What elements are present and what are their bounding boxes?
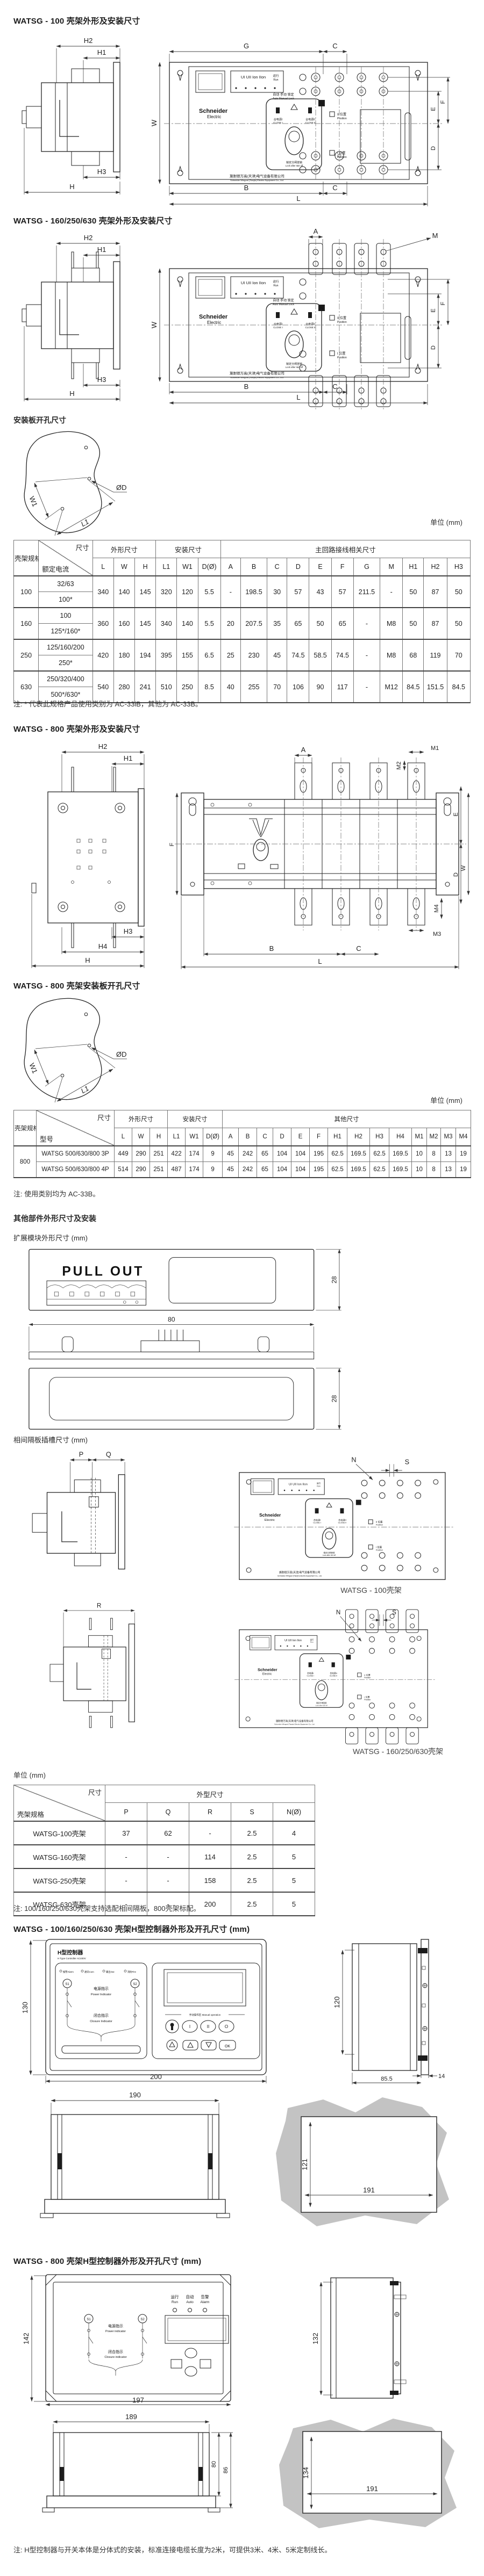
- table-cell: M12: [380, 671, 403, 703]
- led-label: 报警Alarm: [63, 1970, 74, 1974]
- table-cell: 487: [168, 1162, 186, 1178]
- s1-label: S1: [87, 2318, 91, 2321]
- table-cell: 194: [135, 639, 156, 671]
- table-cell: 155: [177, 639, 198, 671]
- table-cell: 117: [331, 671, 353, 703]
- company-name-en: Schneider Wingoal (Tianjin) Electric Equ…: [230, 179, 284, 182]
- dim-label: W1: [28, 1062, 39, 1074]
- front-view: UI UII Ion IIon 运行 Run Schneider Electri…: [234, 1456, 454, 1579]
- table-cell: 25: [220, 639, 240, 671]
- col-header: M1: [412, 1128, 427, 1146]
- unit-label: 单位 (mm): [8, 517, 462, 527]
- table-cell: -: [105, 1868, 147, 1892]
- brand-logo-2: Electric: [207, 114, 221, 119]
- terminal-screws: [361, 1480, 421, 1571]
- section-title-watsg160: WATSG - 160/250/630 壳架外形及安装尺寸: [13, 215, 173, 226]
- table-cell: 125*/160*: [39, 624, 92, 640]
- table-cell: 62.5: [328, 1146, 347, 1162]
- mode-label-cn: 自动 手动 锁定: [273, 92, 294, 97]
- dim-label: 191: [363, 2186, 375, 2194]
- table-cell: 420: [92, 639, 113, 671]
- table-cell: 50: [447, 608, 470, 639]
- table-cell: -: [220, 576, 240, 608]
- dimension-table-100-630: 壳架规格 尺寸 额定电流 外形尺寸 安装尺寸 主回路接线相关尺寸 L W H L…: [13, 540, 471, 703]
- dim-label: S: [392, 1609, 396, 1616]
- dim-label: W: [150, 119, 158, 126]
- col-header: E: [309, 558, 331, 576]
- bottom-lugs: [309, 376, 390, 407]
- table-cell: 84.5: [447, 671, 470, 703]
- table-cell: 30: [267, 576, 287, 608]
- dim-label: H: [85, 956, 90, 964]
- table-cell: 57: [287, 576, 309, 608]
- table-cell: WATSG 500/630/800 3P: [37, 1146, 115, 1162]
- dim-label: 121: [301, 2159, 309, 2170]
- table-cell: 6.5: [198, 639, 220, 671]
- table-cell: 50: [403, 576, 424, 608]
- table-cell: 250/320/400: [39, 671, 92, 687]
- col-header: Q: [147, 1803, 189, 1821]
- col-header: H2: [347, 1128, 370, 1146]
- table-cell: 8: [427, 1162, 441, 1178]
- table-cell: 195: [310, 1146, 328, 1162]
- dim-label: F: [440, 100, 446, 104]
- dim-label: L: [296, 194, 300, 203]
- bottom-lugs: [345, 1728, 418, 1744]
- corner-top-label: 尺寸: [97, 1112, 111, 1122]
- led-label: 消防Fire: [127, 1970, 137, 1974]
- caption-frame160: WATSG - 160/250/630壳架: [285, 1746, 484, 1757]
- table-cell: 65: [287, 608, 309, 639]
- pos2-en: Position: [337, 117, 347, 120]
- left-button: [171, 2359, 182, 2368]
- table-cell: 10: [412, 1162, 427, 1178]
- n-terminal-label: N: [357, 1502, 360, 1505]
- table-cell: 45: [223, 1162, 239, 1178]
- table-cell: 255: [240, 671, 267, 703]
- section-title-watsg800-mount: WATSG - 800 壳架安装板开孔尺寸: [13, 980, 140, 991]
- col-header: H3: [447, 558, 470, 576]
- dim-label: 130: [21, 2002, 29, 2014]
- close2-en: CLOSE II: [338, 1522, 347, 1524]
- dim-label: 80: [168, 1316, 175, 1323]
- down-button: [185, 2366, 197, 2376]
- table-cell: WATSG-160壳架: [14, 1845, 105, 1868]
- col-header: W1: [177, 558, 198, 576]
- table-cell: 514: [115, 1162, 132, 1178]
- col-header: L1: [168, 1128, 186, 1146]
- company-name-en: Schneider Wingoal (Tianjin) Electric Equ…: [274, 1723, 315, 1725]
- table-cell: 340: [92, 576, 113, 608]
- h-controller-small-drawing: 130 H型控制器 H Type Controller AC400V 报警Ala…: [8, 1934, 471, 2084]
- indicator-diagram: S1 S2 电源指示 Power indicator 闭合指示 Closure …: [84, 2314, 147, 2376]
- table-cell: 119: [424, 639, 447, 671]
- col-header: M2: [427, 1128, 441, 1146]
- table-cell: 70: [267, 671, 287, 703]
- col-header-frame: 壳架规格: [14, 540, 39, 576]
- pos2-cn: II 位置: [337, 112, 346, 117]
- pos2-en: Position: [337, 321, 347, 324]
- col-header: M: [380, 558, 403, 576]
- controller-title-en: H Type Controller AC400V: [58, 1957, 86, 1960]
- pos1-en: Position: [337, 356, 347, 359]
- table-cell: M8: [380, 608, 403, 639]
- h-controller-800-top-and-cutout: 189 80 86 134 191: [8, 2413, 471, 2532]
- closure-indicator-en: Closure Indicator: [90, 2020, 112, 2023]
- close2-en: CLOSE II: [305, 326, 315, 329]
- top-lugs: [345, 1610, 418, 1633]
- company-name-en: Schneider Wingoal (Tianjin) Electric Equ…: [277, 1575, 322, 1577]
- col-header: S: [231, 1803, 273, 1821]
- col-header: L: [92, 558, 113, 576]
- col-header: H1: [328, 1128, 347, 1146]
- expansion-module-drawing: PULL OUT 28 80 2: [13, 1244, 401, 1432]
- table-cell: 45: [267, 639, 287, 671]
- lock-cn: 锁定分闸挂锁: [316, 1701, 327, 1704]
- table-cell: 5.5: [198, 576, 220, 608]
- table-cell: 70: [447, 639, 470, 671]
- power-indicator-en: Power Indicator: [91, 1993, 111, 1996]
- right-button: [200, 2359, 211, 2368]
- closure-indicator-cn: 闭合指示: [108, 2349, 123, 2354]
- table-cell: 45: [223, 1146, 239, 1162]
- col-header: H: [150, 1128, 168, 1146]
- led-en: Alarm: [201, 2300, 210, 2304]
- top-view: 189 80 86: [42, 2413, 233, 2512]
- col-header: H1: [403, 558, 424, 576]
- table-cell: 13: [441, 1162, 456, 1178]
- table-cell: 340: [156, 608, 177, 639]
- dim-label: C: [332, 184, 337, 192]
- table-cell: 62.5: [328, 1162, 347, 1178]
- dim-label: 190: [129, 2091, 141, 2099]
- dim-label: H3: [97, 376, 106, 384]
- col-header: H2: [424, 558, 447, 576]
- table-cell: 40: [220, 671, 240, 703]
- keyhole-slots: [189, 798, 451, 886]
- table-cell: 251: [150, 1162, 168, 1178]
- table-cell: 145: [135, 576, 156, 608]
- diagonal-header: 尺寸 型号: [37, 1110, 115, 1146]
- table-cell: 251: [150, 1146, 168, 1162]
- ok-button-label: OK: [225, 2045, 230, 2048]
- close2-cn: 合电源II: [305, 322, 315, 326]
- table-cell: 145: [135, 608, 156, 639]
- dim-label: G: [244, 42, 249, 50]
- table-cell: 104: [291, 1162, 310, 1178]
- dim-label: P: [79, 1451, 83, 1459]
- down-button: [201, 2040, 216, 2050]
- brand-logo: Schneider: [199, 314, 228, 320]
- dim-label: B: [269, 944, 274, 953]
- col-header: A: [223, 1128, 239, 1146]
- table-cell: 211.5: [353, 576, 380, 608]
- table-cell: 114: [189, 1845, 231, 1868]
- dim-label: 191: [366, 2485, 378, 2493]
- table-cell: 2.5: [231, 1868, 273, 1892]
- dim-label: W: [460, 865, 467, 871]
- table-cell: -: [353, 639, 380, 671]
- company-name-en: Schneider Wingoal (Tianjin) Electric Equ…: [230, 376, 284, 379]
- table-cell: 50: [447, 576, 470, 608]
- diagonal-header: 尺寸 壳架规格: [14, 1785, 105, 1822]
- run-label-en: Run: [310, 1641, 314, 1643]
- col-header: H3: [370, 1128, 389, 1146]
- dim-label: M1: [431, 745, 439, 752]
- table-cell: 360: [92, 608, 113, 639]
- table-cell: 37: [105, 1821, 147, 1845]
- corner-top-label: 尺寸: [88, 1787, 102, 1797]
- table-cell: 207.5: [240, 608, 267, 639]
- side-view: 120 14 85.5: [333, 1939, 445, 2084]
- dim-label: B: [244, 184, 249, 192]
- table-cell: 65: [257, 1146, 273, 1162]
- table-cell: 158: [189, 1868, 231, 1892]
- table-cell: 140: [113, 576, 134, 608]
- group-header-outline: 外型尺寸: [105, 1785, 315, 1803]
- top-lugs: [295, 763, 425, 799]
- table-cell: 5.5: [198, 608, 220, 639]
- side-view: H2 H1 H3 H: [22, 234, 120, 401]
- dim-label: H1: [124, 754, 133, 762]
- close1-en: CLOSE I: [313, 1522, 321, 1524]
- led-cn: 运行: [171, 2294, 179, 2299]
- pos2-cn: II 位置: [364, 1673, 370, 1676]
- col-header: M4: [456, 1128, 471, 1146]
- button-label-o: O: [225, 2024, 228, 2029]
- unit-label: 单位 (mm): [8, 1095, 462, 1105]
- s2-label: S2: [133, 1983, 137, 1986]
- section-title-barrier: 相间隔板插槽尺寸 (mm): [13, 1434, 88, 1445]
- table-cell: 57: [331, 576, 353, 608]
- table-cell: 174: [186, 1146, 203, 1162]
- power-indicator-en: Power indicator: [105, 2330, 126, 2333]
- col-header: E: [291, 1128, 310, 1146]
- table-cell: 395: [156, 639, 177, 671]
- side-view: 132: [311, 2278, 406, 2398]
- close1-cn: 合电源I: [274, 118, 282, 121]
- company-name-cn: 施耐德万高(天津)电气设备有限公司: [276, 1719, 314, 1723]
- brand-logo: Schneider: [199, 108, 228, 114]
- close1-cn: 合电源I: [274, 322, 282, 326]
- col-header: W: [132, 1128, 150, 1146]
- indicator-panel: 报警Alarm 通讯Com 输出Out 消防Fire S1 S2 电源指示 Po…: [55, 1963, 147, 2059]
- side-view: P Q: [32, 1451, 125, 1569]
- table-cell: 169.5: [347, 1146, 370, 1162]
- dim-label: W: [150, 321, 158, 328]
- led-labels: UI UII Ion IIon: [284, 1639, 302, 1642]
- table-cell: 65: [257, 1162, 273, 1178]
- table-cell: 250*: [39, 655, 92, 672]
- table-cell: -: [353, 608, 380, 639]
- table-cell: 65: [331, 608, 353, 639]
- h-controller-800-drawing: 142 运行 自动 告警 Run Auto Alarm S1 S2 电源指示 P…: [8, 2270, 471, 2407]
- led-indicators: 运行 自动 告警 Run Auto Alarm: [171, 2294, 210, 2312]
- barrier-dimension-table: 尺寸 壳架规格 外型尺寸 P Q R S N(Ø) WATSG-100壳架376…: [13, 1785, 315, 1916]
- table-cell: 74.5: [331, 639, 353, 671]
- col-header: C: [267, 558, 287, 576]
- led-en: Run: [172, 2300, 178, 2304]
- table-cell: 100*: [39, 592, 92, 608]
- table-cell: 2.5: [231, 1845, 273, 1868]
- close2-cn: 合电源II: [305, 118, 315, 121]
- col-header: L1: [156, 558, 177, 576]
- table-cell: WATSG-250壳架: [14, 1868, 105, 1892]
- table-cell: 62.5: [370, 1146, 389, 1162]
- detail-holes: [72, 839, 111, 884]
- dim-label: 197: [132, 2396, 144, 2404]
- button-label-ii: II: [207, 2024, 209, 2029]
- col-header: P: [105, 1803, 147, 1821]
- led-label: 输出Out: [106, 1970, 115, 1974]
- side-view: H2 H1 H3 H: [22, 37, 120, 194]
- dim-label: H1: [97, 48, 106, 56]
- table-cell: 68: [403, 639, 424, 671]
- dim-label: 14: [438, 2073, 445, 2080]
- table-cell: 43: [309, 576, 331, 608]
- section-title-other-parts: 其他部件外形尺寸及安装: [13, 1213, 96, 1224]
- n-terminal-label: N: [320, 101, 323, 106]
- table-cell: 290: [132, 1146, 150, 1162]
- table-cell: 160: [113, 608, 134, 639]
- barrier-slot-drawing-100: P Q UI UII Ion IIon 运行 Run: [8, 1448, 471, 1584]
- power-indicator-cn: 电源指示: [108, 2324, 123, 2328]
- side-view: H2 H1 H3: [32, 742, 144, 968]
- table-cell: 35: [267, 608, 287, 639]
- led-cn: 自动: [186, 2294, 194, 2299]
- section-title-ctrl-small: WATSG - 100/160/250/630 壳架H型控制器外形及开孔尺寸 (…: [13, 1923, 250, 1935]
- dim-label: S: [405, 1458, 409, 1466]
- front-view: A M1 M2 E W D M4 M3 F B C L: [169, 745, 468, 969]
- corner-top-label: 尺寸: [76, 542, 89, 552]
- table-cell: 422: [168, 1146, 186, 1162]
- s2-label: S2: [140, 2318, 145, 2321]
- dim-label: A: [301, 746, 306, 754]
- group-header-install: 安装尺寸: [168, 1110, 223, 1128]
- watsg-100-outline-drawing: H2 H1 H3 H: [8, 31, 471, 211]
- col-header: R: [189, 1803, 231, 1821]
- pos1-en: Position: [376, 1549, 383, 1551]
- run-label-cn: 运行: [273, 74, 279, 78]
- table-cell: 160: [14, 608, 39, 639]
- table-cell: 4: [273, 1821, 315, 1845]
- dim-label: R: [97, 1603, 101, 1610]
- dim-label: 86: [223, 2467, 229, 2473]
- panel-cutout: 121 191: [276, 2097, 449, 2226]
- table-cell: 100: [39, 608, 92, 624]
- s1-label: S1: [65, 1983, 69, 1986]
- col-header: W: [113, 558, 134, 576]
- controller-title-cn: H型控制器: [58, 1949, 83, 1956]
- dim-label: M: [432, 232, 438, 240]
- table-cell: 104: [273, 1146, 291, 1162]
- led-label: 通讯Com: [84, 1970, 94, 1974]
- dim-label: 134: [302, 2467, 310, 2479]
- table-cell: 125/160/200: [39, 639, 92, 655]
- table-cell: WATSG-100壳架: [14, 1821, 105, 1845]
- dim-label: 85.5: [381, 2076, 392, 2082]
- group-header-main: 主回路接线相关尺寸: [220, 540, 470, 558]
- brand-logo-2: Electric: [262, 1673, 272, 1676]
- table-cell: 32/63: [39, 576, 92, 592]
- table-cell: 58.5: [309, 639, 331, 671]
- col-header: N(Ø): [273, 1803, 315, 1821]
- dim-label: D: [453, 872, 459, 877]
- corner-bottom-label: 型号: [40, 1134, 53, 1144]
- table-cell: 800: [14, 1146, 37, 1178]
- n-terminal-label: N: [347, 1656, 350, 1659]
- col-header: A: [220, 558, 240, 576]
- led-labels: UI UII Ion IIon: [241, 75, 266, 80]
- dim-label: F: [169, 842, 175, 846]
- table-cell: 84.5: [403, 671, 424, 703]
- note-table1: 注: * 代表此规格产品使用类别为 AC-33iB，其他为 AC-33B。: [13, 698, 202, 709]
- table-cell: M8: [380, 639, 403, 671]
- dim-label: L: [296, 393, 300, 401]
- run-label-en: Run: [273, 78, 278, 82]
- dim-label: L: [318, 957, 322, 965]
- company-name-cn: 施耐德万高(天津)电气设备有限公司: [230, 174, 284, 178]
- company-name-cn: 施耐德万高(天津)电气设备有限公司: [279, 1570, 320, 1574]
- close2-cn: 合电源II: [330, 1672, 337, 1675]
- table-cell: 62: [147, 1821, 189, 1845]
- dim-label: C: [356, 944, 361, 953]
- dim-label: E: [430, 107, 437, 111]
- col-header: F: [331, 558, 353, 576]
- dim-label: N: [351, 1456, 356, 1463]
- pull-out-label: PULL OUT: [62, 1265, 144, 1279]
- diagonal-header: 尺寸 额定电流: [39, 540, 92, 576]
- table-cell: 5: [273, 1892, 315, 1916]
- table-cell: 169.5: [347, 1162, 370, 1178]
- dim-label: 200: [150, 2073, 162, 2081]
- dim-label: W1: [28, 495, 39, 508]
- dim-label: H: [69, 389, 74, 398]
- table-cell: 74.5: [287, 639, 309, 671]
- table-cell: 106: [287, 671, 309, 703]
- table-cell: 230: [240, 639, 267, 671]
- dim-label: 189: [125, 2413, 137, 2421]
- button-label-i: I: [189, 2024, 190, 2029]
- corner-bottom-label: 额定电流: [42, 564, 69, 574]
- closure-indicator-cn: 闭合指示: [94, 2013, 109, 2018]
- lock-cn: 锁定分闸挂锁: [324, 1551, 335, 1554]
- manual-zone-label: 手动操作区 Manual operation: [189, 2013, 221, 2017]
- table-cell: 13: [441, 1146, 456, 1162]
- dim-label: L1: [80, 1084, 90, 1095]
- barrier-slot-drawing-160: R: [8, 1601, 471, 1745]
- pos2-en: Position: [376, 1524, 383, 1526]
- module-rear-view: [29, 1368, 314, 1430]
- pos1-cn: I 位置: [337, 351, 345, 356]
- group-header-install: 安装尺寸: [156, 540, 221, 558]
- brand-logo: Schneider: [259, 1512, 281, 1518]
- top-view: 190: [40, 2091, 230, 2218]
- table-cell: 242: [239, 1146, 257, 1162]
- dim-label: H: [69, 183, 74, 191]
- table-cell: -: [380, 576, 403, 608]
- table-cell: -: [147, 1868, 189, 1892]
- close1-en: CLOSE I: [273, 326, 283, 329]
- col-header: W1: [186, 1128, 203, 1146]
- led-labels: UI UII Ion IIon: [241, 280, 266, 285]
- close1-cn: 合电源I: [314, 1518, 321, 1521]
- table-cell: 62.5: [370, 1162, 389, 1178]
- mount-screws: [58, 803, 125, 912]
- table-cell: -: [189, 1821, 231, 1845]
- bottom-profile: [29, 1330, 314, 1359]
- table-cell: 120: [177, 576, 198, 608]
